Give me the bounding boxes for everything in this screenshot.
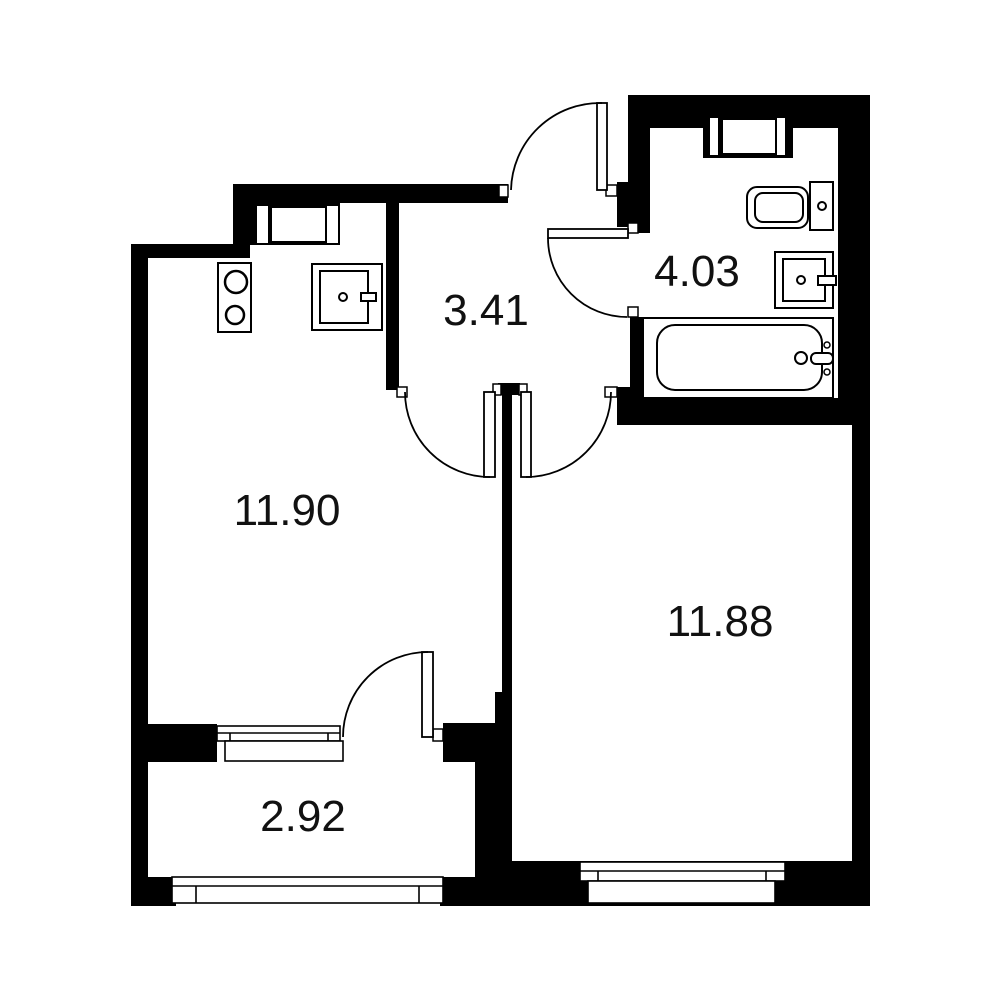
bathtub-tap-dot	[824, 342, 830, 348]
bathroom-area-label: 4.03	[654, 247, 740, 296]
door-leaf	[422, 652, 433, 737]
right-exterior-wall	[852, 425, 870, 906]
room-top-wall	[617, 398, 852, 425]
kitchen-sink-icon	[312, 264, 382, 330]
washbasin-icon	[775, 252, 836, 308]
window-pane	[327, 206, 338, 243]
kitchen-room-partition	[502, 395, 512, 695]
window-pane	[257, 206, 268, 243]
door-leaf	[521, 392, 531, 477]
balcony-window	[217, 726, 343, 761]
stove-icon	[218, 263, 251, 332]
door-swing-arc	[511, 103, 602, 190]
door-swing-arc	[343, 652, 428, 737]
balcony-partition-block	[443, 723, 512, 762]
room-door	[519, 384, 617, 477]
window-pane	[723, 120, 775, 153]
door-jamb	[628, 223, 638, 233]
balcony-bottom-left-pier	[131, 877, 176, 906]
balcony-partition-left	[148, 724, 217, 762]
kitchen-room-partition-mid	[495, 692, 512, 725]
door-jamb	[433, 729, 443, 741]
door-leaf	[597, 103, 607, 190]
entrance-right-pier	[617, 182, 628, 227]
bathroom-door	[548, 223, 638, 317]
window-pane	[710, 118, 718, 155]
door-jamb	[499, 185, 508, 197]
door-leaf	[548, 229, 628, 238]
hallway-area-label: 3.41	[443, 286, 529, 335]
sink-drain	[339, 293, 347, 301]
bathroom-right-wall	[838, 95, 870, 425]
door-leaf	[484, 392, 495, 477]
left-exterior-wall	[131, 244, 148, 906]
kitchen-door	[397, 384, 501, 477]
kitchen-step-wall	[131, 244, 250, 258]
window-sill	[225, 741, 343, 761]
basin-faucet	[818, 276, 836, 285]
toilet-icon	[747, 182, 833, 230]
floor-plan: 11.90 3.41 4.03 11.88 2.92	[0, 0, 1000, 1000]
room-window	[580, 862, 785, 903]
bathtub-drain	[795, 352, 807, 364]
toilet-bowl-inner	[755, 193, 803, 222]
balcony-glazing	[172, 877, 443, 903]
window-pane	[777, 118, 785, 155]
stove-burner-large	[225, 271, 247, 293]
door-jamb	[628, 307, 638, 317]
kitchen-hallway-partition	[386, 203, 399, 390]
bathtub-tap-dot	[824, 369, 830, 375]
bathroom-left-wall-upper	[628, 95, 650, 233]
floor-plan-drawing: 11.90 3.41 4.03 11.88 2.92	[0, 0, 1000, 1000]
door-swing-arc	[548, 238, 627, 317]
toilet-flush-button	[818, 202, 826, 210]
kitchen-area-label: 11.90	[234, 486, 341, 535]
entrance-door	[499, 103, 617, 197]
balcony-door	[343, 652, 443, 741]
stove-burner-small	[226, 306, 244, 324]
door-swing-arc	[405, 392, 490, 477]
window-sill	[588, 881, 775, 903]
balcony-room-partition	[475, 762, 512, 879]
balcony-bottom-right-pier	[440, 877, 512, 906]
basin-drain	[797, 276, 805, 284]
bathroom-left-wall-lower	[630, 317, 642, 398]
door-swing-arc	[526, 392, 611, 477]
living-room-area-label: 11.88	[667, 597, 774, 646]
glazing	[172, 877, 443, 903]
sink-faucet	[361, 293, 376, 301]
kitchen-hall-top-wall	[233, 184, 508, 203]
bathtub-faucet	[811, 353, 833, 364]
bathtub-icon	[643, 318, 833, 398]
window-pane	[272, 208, 325, 241]
balcony-area-label: 2.92	[260, 792, 346, 841]
